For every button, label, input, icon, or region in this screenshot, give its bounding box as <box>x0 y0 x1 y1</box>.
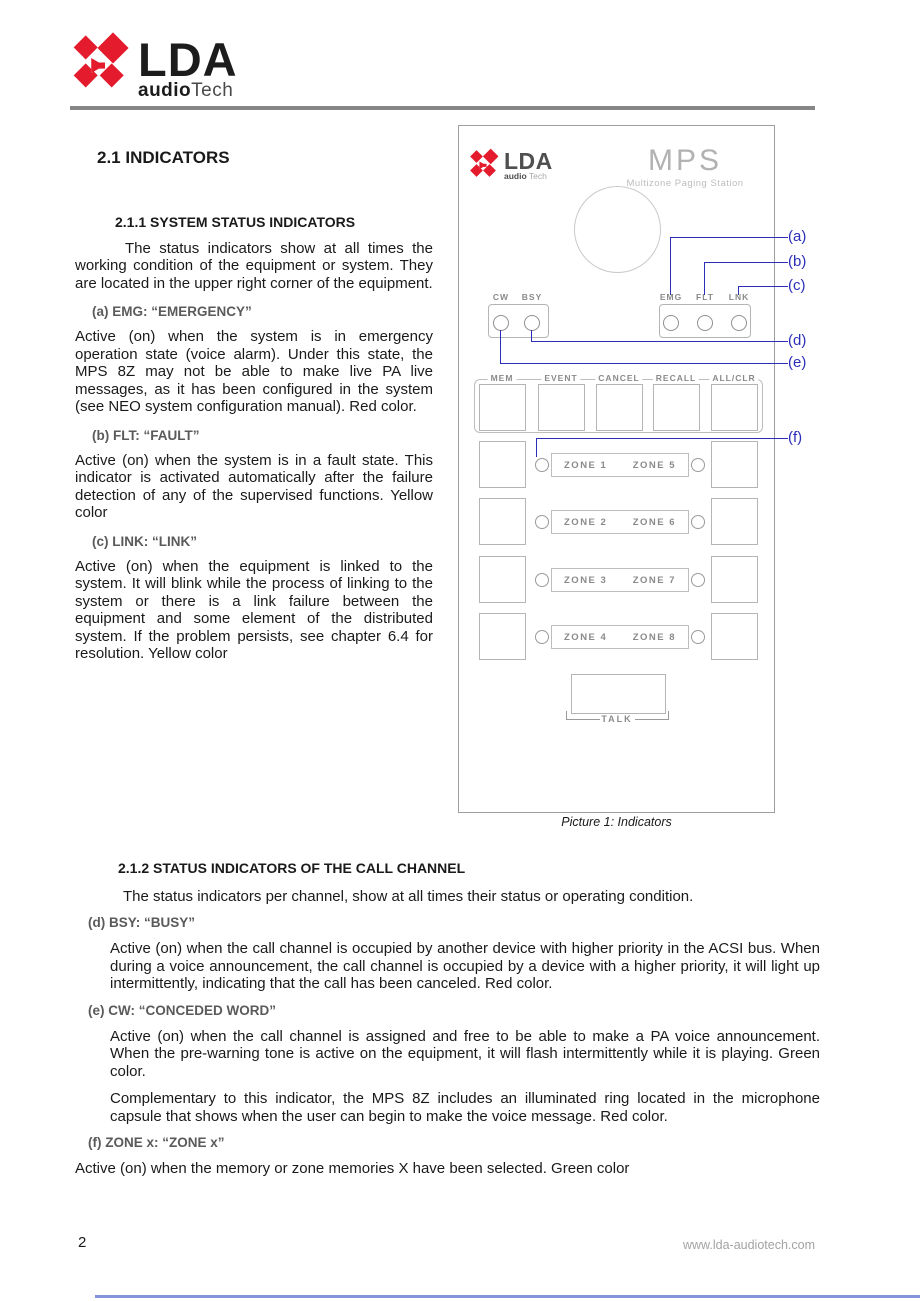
callout-label-a: (a) <box>788 229 806 245</box>
item-heading-d: (d) BSY: “BUSY” <box>88 915 820 930</box>
zone4-led <box>535 630 549 644</box>
key-label-event: EVENT <box>541 373 580 383</box>
item-heading-f: (f) ZONE x: “ZONE x” <box>88 1135 820 1150</box>
zone6-key <box>711 498 758 545</box>
section-2-1-2: 2.1.2 STATUS INDICATORS OF THE CALL CHAN… <box>75 860 820 1188</box>
item-body-e2: Complementary to this indicator, the MPS… <box>110 1090 820 1125</box>
paragraph: The status indicators show at all times … <box>75 240 433 292</box>
lnk-led <box>731 315 747 331</box>
key-label-allclr: ALL/CLR <box>709 373 758 383</box>
figure-caption: Picture 1: Indicators <box>458 815 775 829</box>
brand-subname: audioTech <box>138 81 238 100</box>
zone-label: ZONE 7 <box>633 575 676 586</box>
callout-label-f: (f) <box>788 430 802 446</box>
zone3-led <box>535 573 549 587</box>
recall-key <box>653 384 700 431</box>
figure-indicators: LDA audio Tech MPS Multizone Paging Stat… <box>458 125 830 837</box>
device-model: MPS Multizone Paging Station <box>610 146 760 189</box>
item-heading-e: (e) CW: “CONCEDED WORD” <box>88 1003 820 1018</box>
key-label-cancel: CANCEL <box>595 373 642 383</box>
item-heading-b: (b) FLT: “FAULT” <box>92 428 433 443</box>
zone-label: ZONE 2 <box>564 517 607 528</box>
header-brand-text: LDA audioTech <box>138 36 238 100</box>
item-body-b: Active (on) when the system is in a faul… <box>75 452 433 522</box>
callout-label-d: (d) <box>788 333 806 349</box>
subsection-title: 2.1.2 STATUS INDICATORS OF THE CALL CHAN… <box>118 860 820 876</box>
left-column: 2.1 INDICATORS 2.1.1 SYSTEM STATUS INDIC… <box>75 148 433 672</box>
zone-label: ZONE 3 <box>564 575 607 586</box>
zone3-key <box>479 556 526 603</box>
allclr-key <box>711 384 758 431</box>
paragraph: The status indicators per channel, show … <box>75 888 820 905</box>
key-label-recall: RECALL <box>653 373 699 383</box>
key-label-mem: MEM <box>488 373 517 383</box>
zone-label: ZONE 8 <box>633 632 676 643</box>
talk-key <box>571 674 666 714</box>
website-url: www.lda-audiotech.com <box>683 1238 815 1252</box>
zone2-key <box>479 498 526 545</box>
brand-name: LDA <box>138 36 238 83</box>
zone7-key <box>711 556 758 603</box>
event-key <box>538 384 585 431</box>
subsection-title: 2.1.1 SYSTEM STATUS INDICATORS <box>115 214 433 230</box>
bsy-led <box>524 315 540 331</box>
item-body-c: Active (on) when the equipment is linked… <box>75 558 433 663</box>
lda-diamonds-speaker-icon <box>471 150 501 180</box>
zone-label: ZONE 4 <box>564 632 607 643</box>
zone-row-1: ZONE 1 ZONE 5 <box>551 453 689 477</box>
led-label-bsy: BSY <box>520 292 544 302</box>
zone-row-2: ZONE 2 ZONE 6 <box>551 510 689 534</box>
item-body-e1: Active (on) when the call channel is ass… <box>110 1028 820 1080</box>
callout-line-f <box>536 438 788 439</box>
zone8-led <box>691 630 705 644</box>
flt-led <box>697 315 713 331</box>
led-label-emg: EMG <box>658 292 684 302</box>
cancel-key <box>596 384 643 431</box>
header-divider <box>70 106 815 110</box>
talk-label: TALK <box>601 714 632 724</box>
manual-page: LDA audioTech 2.1 INDICATORS 2.1.1 SYSTE… <box>0 0 920 1301</box>
device-front-panel: LDA audio Tech MPS Multizone Paging Stat… <box>458 125 775 813</box>
zone5-key <box>711 441 758 488</box>
emg-led <box>663 315 679 331</box>
zone-row-3: ZONE 3 ZONE 7 <box>551 568 689 592</box>
model-name: MPS <box>610 146 760 176</box>
model-subtitle: Multizone Paging Station <box>610 178 760 189</box>
zone-row-4: ZONE 4 ZONE 8 <box>551 625 689 649</box>
zone6-led <box>691 515 705 529</box>
led-label-lnk: LNK <box>727 292 751 302</box>
item-heading-c: (c) LINK: “LINK” <box>92 534 433 549</box>
footer-divider <box>95 1295 920 1298</box>
item-body-a: Active (on) when the system is in emerge… <box>75 328 433 415</box>
item-body-d: Active (on) when the call channel is occ… <box>110 940 820 992</box>
lda-diamonds-speaker-icon <box>75 36 133 94</box>
device-brand-text: LDA audio Tech <box>504 150 553 181</box>
item-body-f: Active (on) when the memory or zone memo… <box>75 1160 820 1177</box>
cw-led <box>493 315 509 331</box>
callout-line-a <box>670 237 788 238</box>
callout-label-e: (e) <box>788 355 806 371</box>
callout-line-b <box>704 262 788 263</box>
led-label-flt: FLT <box>694 292 716 302</box>
section-title: 2.1 INDICATORS <box>97 148 433 168</box>
led-label-cw: CW <box>491 292 511 302</box>
zone1-led <box>535 458 549 472</box>
callout-label-c: (c) <box>788 278 806 294</box>
callout-label-b: (b) <box>788 254 806 270</box>
zone7-led <box>691 573 705 587</box>
callout-line-e <box>500 363 788 364</box>
item-heading-a: (a) EMG: “EMERGENCY” <box>92 304 433 319</box>
zone1-key <box>479 441 526 488</box>
zone5-led <box>691 458 705 472</box>
callout-line-d <box>531 341 788 342</box>
device-logo: LDA audio Tech <box>471 150 553 181</box>
zone-label: ZONE 5 <box>633 460 676 471</box>
page-number: 2 <box>78 1234 86 1251</box>
microphone-circle <box>574 186 661 273</box>
zone4-key <box>479 613 526 660</box>
callout-line-c <box>738 286 788 287</box>
zone8-key <box>711 613 758 660</box>
mem-key <box>479 384 526 431</box>
header-logo: LDA audioTech <box>75 36 238 100</box>
zone-label: ZONE 6 <box>633 517 676 528</box>
zone2-led <box>535 515 549 529</box>
zone-label: ZONE 1 <box>564 460 607 471</box>
